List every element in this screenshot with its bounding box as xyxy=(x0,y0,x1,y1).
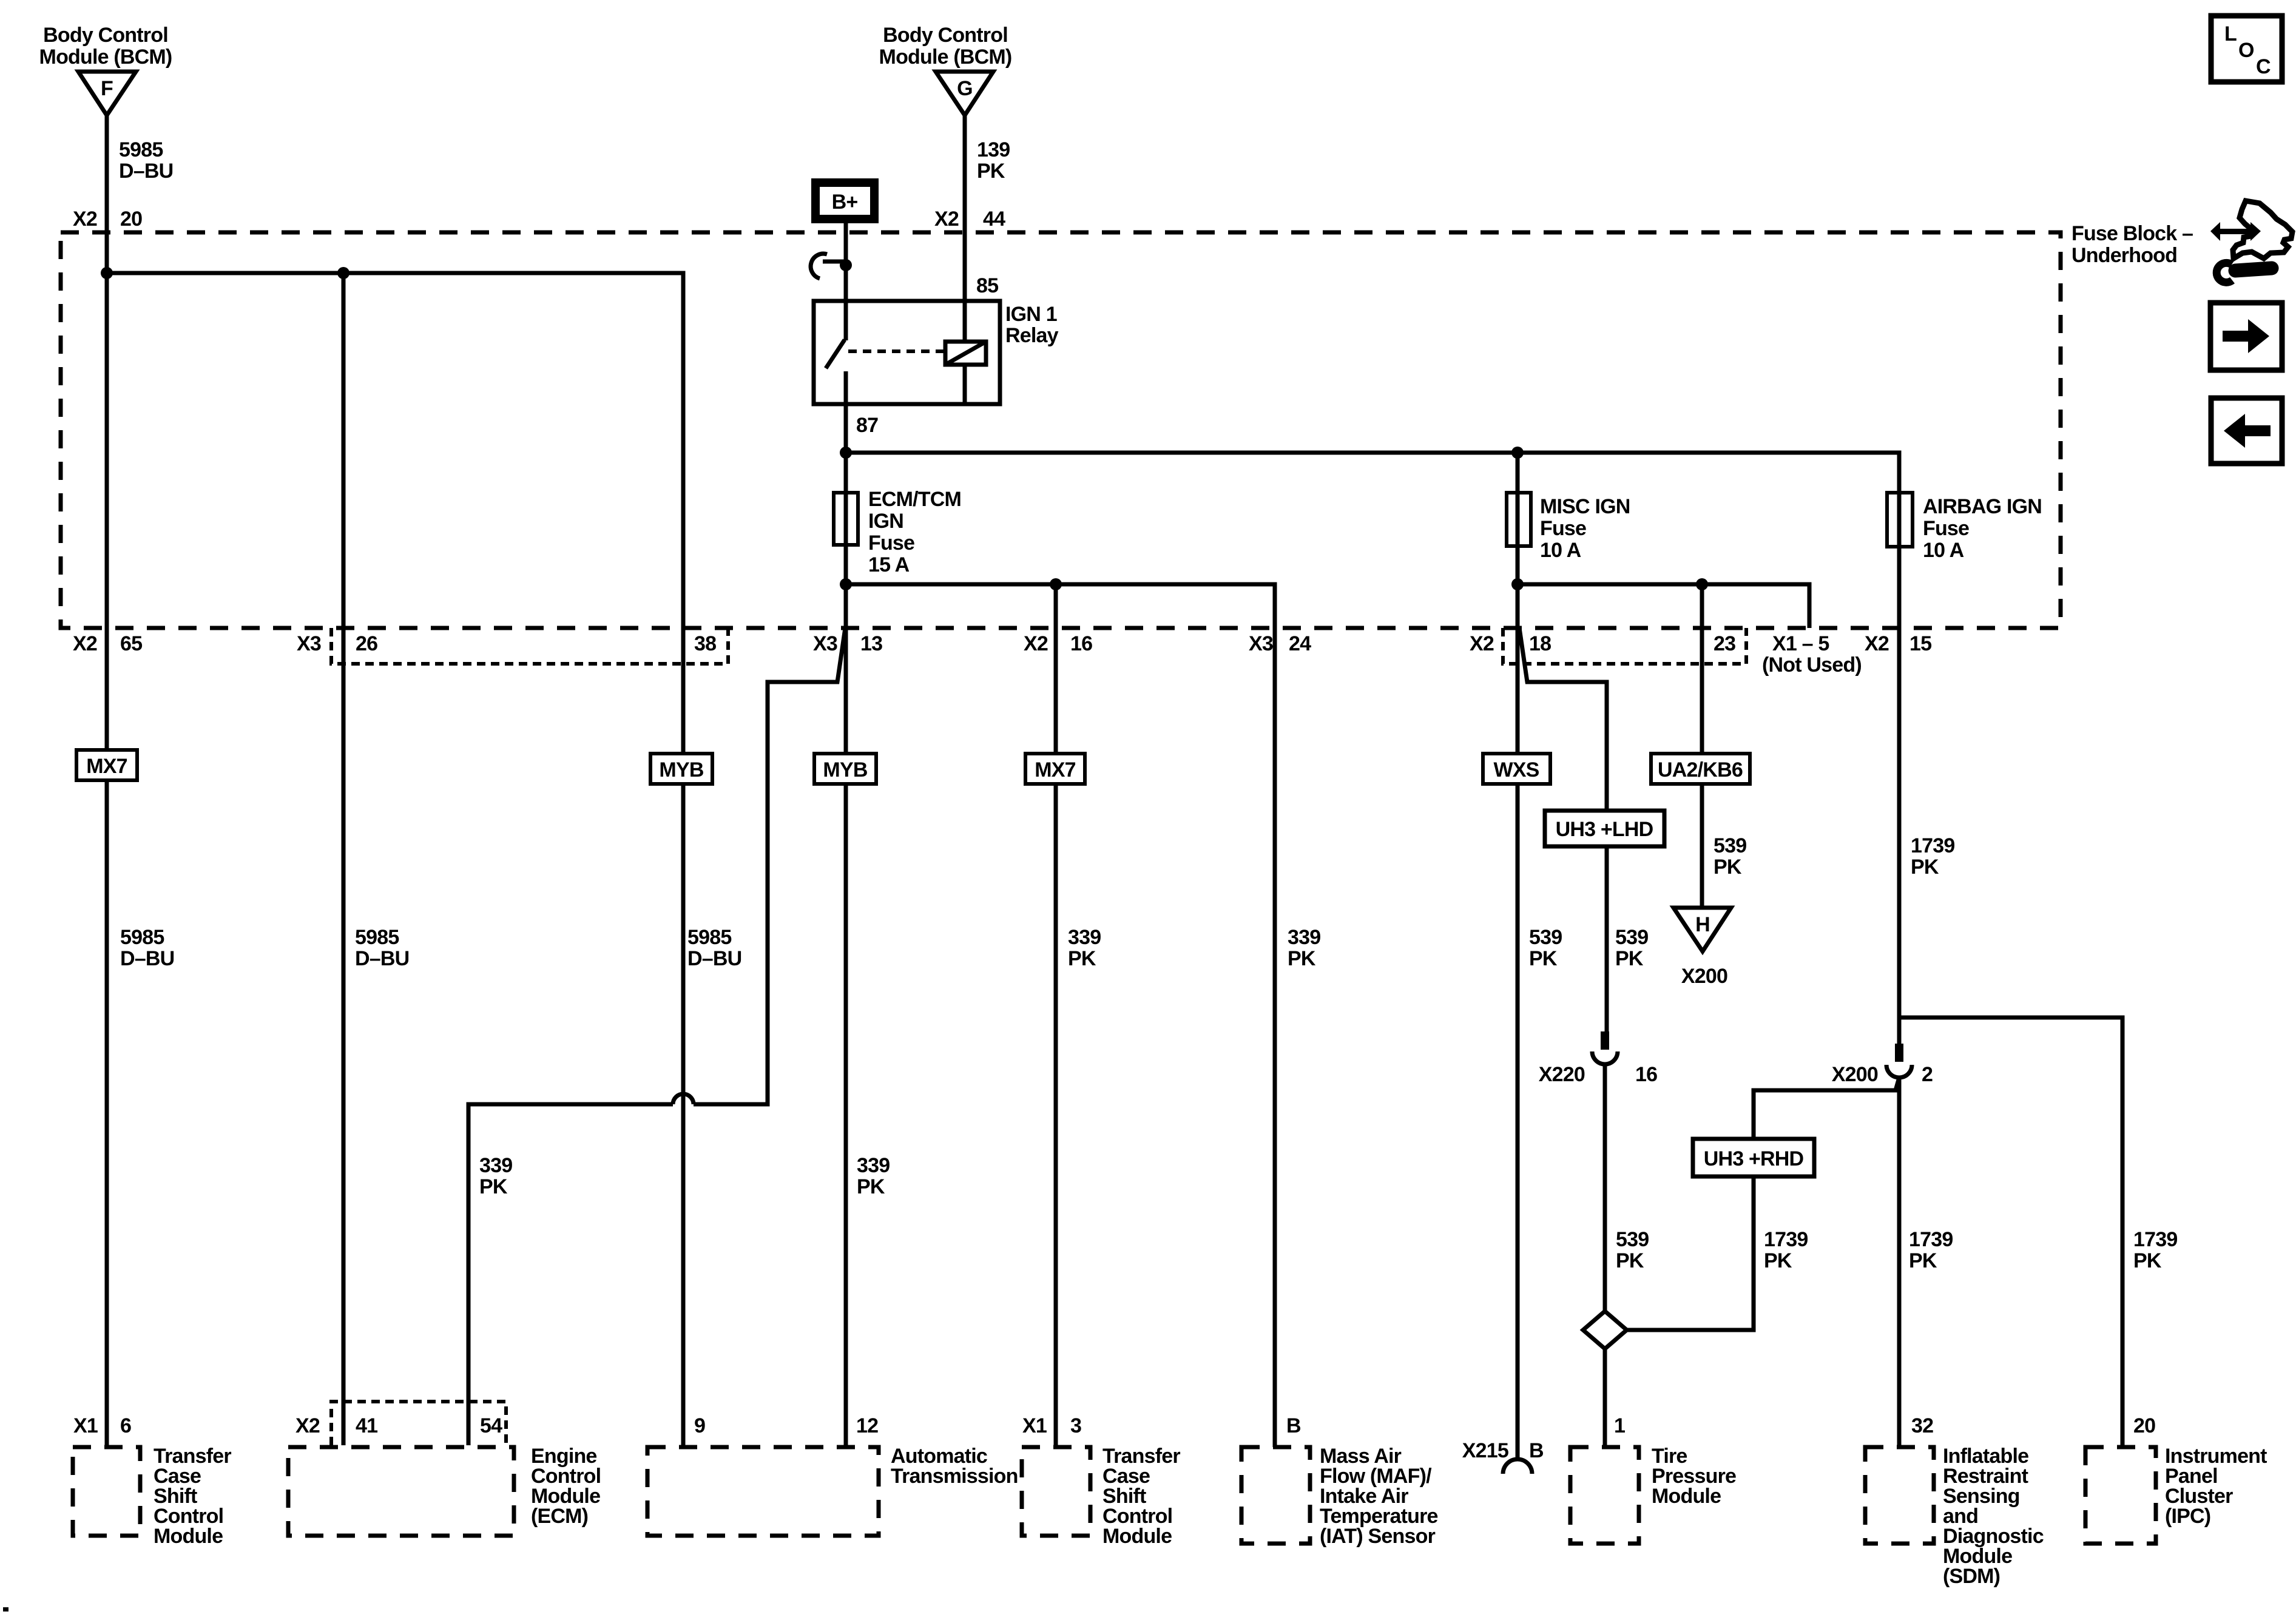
svg-text:2: 2 xyxy=(1922,1063,1933,1086)
svg-text:WXS: WXS xyxy=(1493,758,1539,781)
svg-text:1: 1 xyxy=(1614,1414,1625,1437)
svg-text:54: 54 xyxy=(480,1414,502,1437)
svg-text:Module: Module xyxy=(1652,1485,1721,1508)
svg-text:Module: Module xyxy=(154,1525,223,1548)
svg-text:5985: 5985 xyxy=(687,926,731,949)
svg-text:87: 87 xyxy=(856,414,878,437)
svg-text:PK: PK xyxy=(977,160,1005,183)
svg-text:X2: X2 xyxy=(1865,632,1889,655)
svg-text:PK: PK xyxy=(857,1175,885,1198)
svg-text:(Not Used): (Not Used) xyxy=(1762,653,1862,677)
svg-text:PK: PK xyxy=(2133,1249,2162,1272)
svg-text:G: G xyxy=(957,77,973,100)
svg-text:15 A: 15 A xyxy=(868,553,910,576)
svg-text:Fuse: Fuse xyxy=(1540,517,1586,540)
svg-text:O: O xyxy=(2238,39,2254,62)
svg-text:(IPC): (IPC) xyxy=(2165,1505,2210,1528)
svg-text:Transmission: Transmission xyxy=(891,1465,1018,1488)
svg-text:PK: PK xyxy=(1529,947,1558,970)
svg-text:UA2/KB6: UA2/KB6 xyxy=(1658,758,1743,781)
svg-text:L: L xyxy=(2224,22,2237,46)
svg-text:9: 9 xyxy=(694,1414,705,1437)
svg-text:10 A: 10 A xyxy=(1923,539,1964,562)
svg-text:IGN: IGN xyxy=(868,510,903,533)
svg-text:X2: X2 xyxy=(934,208,959,231)
svg-text:20: 20 xyxy=(2133,1414,2155,1437)
svg-text:10 A: 10 A xyxy=(1540,539,1581,562)
svg-text:X1: X1 xyxy=(73,1414,98,1437)
svg-text:1739: 1739 xyxy=(1909,1228,1953,1251)
svg-text:44: 44 xyxy=(983,208,1005,231)
svg-text:12: 12 xyxy=(856,1414,878,1437)
svg-text:X2: X2 xyxy=(295,1414,320,1437)
svg-text:Module (BCM): Module (BCM) xyxy=(39,46,172,69)
svg-text:6: 6 xyxy=(120,1414,131,1437)
svg-text:IGN 1: IGN 1 xyxy=(1005,303,1057,326)
svg-text:18: 18 xyxy=(1529,632,1551,655)
svg-text:ECM/TCM: ECM/TCM xyxy=(868,488,961,511)
svg-text:MISC IGN: MISC IGN xyxy=(1540,495,1630,518)
svg-text:X3: X3 xyxy=(813,632,837,655)
svg-text:X2: X2 xyxy=(73,632,97,655)
svg-text:(ECM): (ECM) xyxy=(531,1505,588,1528)
svg-text:X2: X2 xyxy=(1470,632,1494,655)
svg-text:PK: PK xyxy=(1616,1249,1644,1272)
svg-text:X3: X3 xyxy=(297,632,321,655)
svg-text:1739: 1739 xyxy=(1764,1228,1808,1251)
svg-text:AIRBAG IGN: AIRBAG IGN xyxy=(1923,495,2042,518)
svg-text:539: 539 xyxy=(1615,926,1648,949)
svg-text:D–BU: D–BU xyxy=(120,947,174,970)
svg-text:PK: PK xyxy=(1068,947,1096,970)
svg-text:Fuse Block –: Fuse Block – xyxy=(2071,222,2193,245)
svg-text:139: 139 xyxy=(977,138,1010,161)
svg-text:H: H xyxy=(1695,913,1710,936)
svg-text:15: 15 xyxy=(1909,632,1931,655)
svg-text:PK: PK xyxy=(1911,856,1939,879)
svg-text:PK: PK xyxy=(1714,856,1742,879)
svg-text:PK: PK xyxy=(1909,1249,1937,1272)
svg-text:(IAT) Sensor: (IAT) Sensor xyxy=(1320,1525,1436,1548)
svg-text:D–BU: D–BU xyxy=(687,947,741,970)
svg-text:B: B xyxy=(1529,1439,1544,1462)
svg-text:X2: X2 xyxy=(73,208,97,231)
svg-text:X1: X1 xyxy=(1022,1414,1047,1437)
svg-text:41: 41 xyxy=(356,1414,377,1437)
svg-text:UH3 +RHD: UH3 +RHD xyxy=(1704,1147,1804,1170)
svg-text:X200: X200 xyxy=(1832,1063,1878,1086)
svg-text:1739: 1739 xyxy=(1911,834,1954,857)
svg-text:5985: 5985 xyxy=(355,926,399,949)
svg-text:C: C xyxy=(2256,55,2271,78)
svg-text:Fuse: Fuse xyxy=(868,532,914,555)
svg-text:X215: X215 xyxy=(1462,1439,1508,1462)
svg-text:F: F xyxy=(101,77,113,100)
svg-text:UH3 +LHD: UH3 +LHD xyxy=(1556,818,1653,841)
svg-text:Body Control: Body Control xyxy=(43,24,168,47)
svg-text:X220: X220 xyxy=(1539,1063,1585,1086)
svg-text:PK: PK xyxy=(1615,947,1644,970)
svg-text:38: 38 xyxy=(694,632,716,655)
svg-text:PK: PK xyxy=(1764,1249,1792,1272)
svg-text:X1 – 5: X1 – 5 xyxy=(1772,632,1829,655)
svg-text:Relay: Relay xyxy=(1005,324,1059,347)
svg-text:X2: X2 xyxy=(1024,632,1048,655)
svg-text:339: 339 xyxy=(479,1154,512,1177)
svg-text:Module: Module xyxy=(1102,1525,1172,1548)
svg-text:X200: X200 xyxy=(1681,965,1727,988)
svg-text:16: 16 xyxy=(1635,1063,1657,1086)
svg-text:32: 32 xyxy=(1911,1414,1933,1437)
svg-text:1739: 1739 xyxy=(2133,1228,2177,1251)
svg-text:339: 339 xyxy=(1068,926,1101,949)
svg-text:MX7: MX7 xyxy=(1035,758,1076,781)
svg-text:X3: X3 xyxy=(1249,632,1273,655)
svg-text:PK: PK xyxy=(1288,947,1316,970)
svg-text:85: 85 xyxy=(976,274,998,297)
svg-text:339: 339 xyxy=(857,1154,890,1177)
svg-text:65: 65 xyxy=(120,632,142,655)
svg-text:16: 16 xyxy=(1070,632,1092,655)
svg-text:5985: 5985 xyxy=(119,138,163,161)
svg-text:13: 13 xyxy=(860,632,882,655)
svg-text:MX7: MX7 xyxy=(86,755,127,778)
svg-text:Fuse: Fuse xyxy=(1923,517,1969,540)
svg-text:Module (BCM): Module (BCM) xyxy=(879,46,1012,69)
svg-text:26: 26 xyxy=(356,632,377,655)
svg-text:(SDM): (SDM) xyxy=(1943,1565,2000,1588)
svg-text:D–BU: D–BU xyxy=(355,947,409,970)
svg-text:23: 23 xyxy=(1714,632,1735,655)
svg-text:D–BU: D–BU xyxy=(119,160,173,183)
svg-text:539: 539 xyxy=(1714,834,1746,857)
svg-text:Underhood: Underhood xyxy=(2071,244,2177,267)
svg-text:24: 24 xyxy=(1289,632,1311,655)
svg-text:Body Control: Body Control xyxy=(883,24,1008,47)
svg-text:5985: 5985 xyxy=(120,926,164,949)
svg-text:539: 539 xyxy=(1616,1228,1649,1251)
svg-text:339: 339 xyxy=(1288,926,1320,949)
svg-text:3: 3 xyxy=(1070,1414,1081,1437)
svg-text:B+: B+ xyxy=(832,191,858,214)
svg-text:20: 20 xyxy=(120,208,142,231)
svg-text:MYB: MYB xyxy=(659,758,703,781)
svg-text:PK: PK xyxy=(479,1175,508,1198)
svg-text:B: B xyxy=(1286,1414,1301,1437)
svg-text:MYB: MYB xyxy=(823,758,867,781)
svg-text:539: 539 xyxy=(1529,926,1562,949)
